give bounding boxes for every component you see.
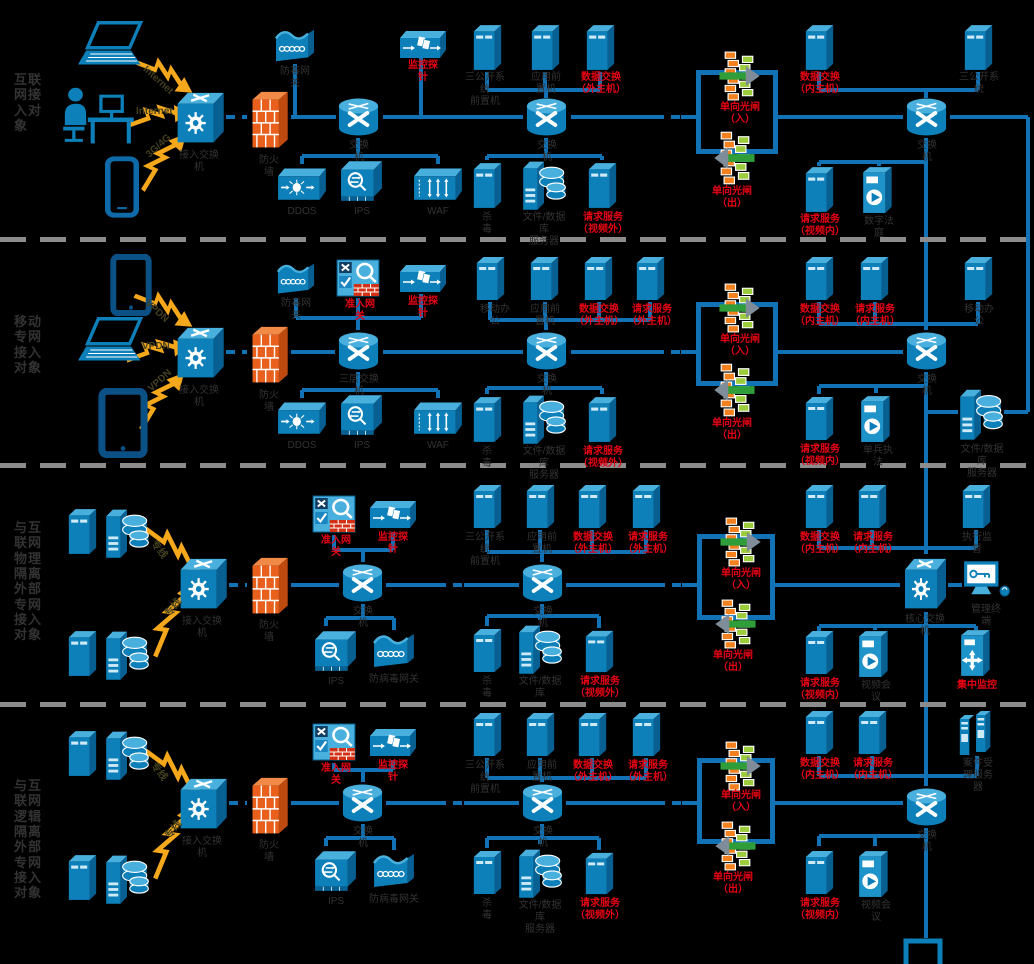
server-antivirus-4-icon [471,848,504,896]
server-request-video-int-2-icon [803,394,836,442]
switch-router-2-icon [523,96,570,138]
video-conference-2-icon [856,848,894,898]
switch-router-1-icon [335,96,382,138]
tablet-2 [98,388,148,458]
firewall-4 [247,774,291,836]
filedb-server-4-icon [517,620,563,676]
switch-router-4-icon [523,330,570,372]
server-antivirus-1-icon [471,160,504,210]
server-request-int-4 [856,708,889,756]
firewall-1 [247,88,291,150]
ext-server-b1-icon [66,728,99,778]
server-request-video-int-3-icon [803,628,836,676]
switch-router-9 [519,782,566,824]
server-request-int-2 [858,254,891,302]
probe-1-icon [398,28,448,60]
server-request-video-ext-2-icon [586,394,619,444]
server-request-video-ext-3-icon [583,628,616,674]
server-data-exchange-int-4 [803,708,836,756]
server-antivirus-4 [471,848,504,896]
switch-router-4 [523,330,570,372]
server-data-exchange-ext-2 [582,254,615,302]
server-data-exchange-int-4-icon [803,708,836,756]
server-data-exchange-int-2 [803,254,836,302]
probe-2 [398,262,448,294]
access-switch-1-icon [172,88,226,146]
probe-4 [368,726,418,758]
server-exec-supervision [960,482,993,530]
switch-router-8-icon [339,782,386,824]
server-app-frontend-4 [524,710,557,758]
server-data-exchange-ext-1 [584,22,617,72]
nac-gateway-2-icon [335,258,381,298]
switch-router-5-icon [903,330,950,372]
server-request-ext-3 [630,482,663,530]
ext-filedb-b2-icon [104,850,150,906]
one-way-gate-in-1 [716,50,762,102]
switch-router-10-icon [903,786,950,828]
one-way-gate-out-3 [713,598,759,650]
antivirus-gateway-2 [276,260,316,298]
firewall-3-icon [247,554,291,616]
filedb-server-3-icon [958,384,1004,442]
antivirus-gateway-4-icon [372,850,416,892]
ddos-2-icon [276,398,328,436]
server-data-exchange-ext-4 [576,710,609,758]
link-caption: VPDN [142,341,170,352]
ips-4-icon [312,846,359,894]
central-monitoring [958,628,996,678]
server-sangongkai-1-icon [962,22,995,72]
user-desk-1 [55,84,137,148]
server-request-int-4-icon [856,708,889,756]
access-switch-2-icon [172,323,226,381]
switch-router-1 [335,96,382,138]
one-way-gate-in-4 [717,740,763,792]
server-request-int-3-icon [856,482,889,530]
nac-gateway-3-icon [311,494,357,534]
waf-2-icon [412,398,464,436]
switch-router-5 [903,330,950,372]
access-switch-2 [172,323,226,381]
case-acceptance-server [956,708,998,756]
server-antivirus-2-icon [471,394,504,444]
ddos-1 [276,164,328,202]
waf-1 [412,164,464,202]
server-data-exchange-int-1-icon [803,22,836,72]
ext-filedb-b2 [104,850,150,906]
server-request-ext-4 [630,710,663,758]
probe-3-icon [368,498,418,530]
switch-router-2 [523,96,570,138]
server-antivirus-3 [471,626,504,674]
server-data-exchange-ext-3 [576,482,609,530]
one-way-gate-in-4-icon [717,740,763,792]
link-caption: Internet [136,106,173,117]
server-sangongkai-frontend-1 [471,22,504,72]
server-request-video-ext-4 [583,850,616,896]
server-request-ext-2 [634,254,667,302]
zone-title: 与互 联网 逻辑 隔离 外部 专网 接入 对象 [14,778,42,901]
firewall-3 [247,554,291,616]
server-data-exchange-ext-3-icon [576,482,609,530]
central-monitoring-icon [958,628,996,678]
filedb-server-2 [521,390,567,446]
ext-filedb-a1-icon [104,504,150,560]
server-mobile-office-2-icon [962,254,995,302]
filedb-server-5-icon [517,844,563,900]
server-request-int-2-icon [858,254,891,302]
zone-title: 与互 联网 物理 隔离 外部 专网 接入 对象 [14,520,42,643]
antivirus-gateway-1-icon [274,26,316,66]
waf-2 [412,398,464,436]
zone-title: 移动 专网 接入 对象 [14,314,42,375]
firewall-2 [247,323,291,385]
ext-filedb-a2 [104,626,150,682]
server-request-video-int-3 [803,628,836,676]
probe-4-icon [368,726,418,758]
server-request-video-int-1 [803,164,836,214]
one-way-gate-out-2 [712,362,758,418]
ips-2-icon [338,390,385,438]
filedb-server-2-icon [521,390,567,446]
antivirus-gateway-3 [372,630,416,672]
one-way-gate-out-4 [713,820,759,872]
ips-4 [312,846,359,894]
server-request-ext-2-icon [634,254,667,302]
ext-server-a2 [66,628,99,678]
ips-1-icon [338,156,385,204]
management-terminal [962,558,1012,602]
antivirus-gateway-4 [372,850,416,892]
server-app-frontend-3-icon [524,482,557,530]
switch-router-7-icon [519,562,566,604]
core-switch [900,554,948,612]
server-request-video-int-2 [803,394,836,442]
server-app-frontend-1-icon [529,22,562,72]
server-data-exchange-int-3 [803,482,836,530]
switch-router-6 [339,562,386,604]
server-mobile-office-1 [474,254,507,302]
ext-server-b1 [66,728,99,778]
ext-filedb-b1 [104,726,150,782]
filedb-server-4 [517,620,563,676]
video-conference-1 [856,628,894,678]
laptop-1-icon [78,20,146,70]
probe-2-icon [398,262,448,294]
server-app-frontend-3 [524,482,557,530]
nac-gateway-3 [311,494,357,534]
digital-court-terminal-icon [860,164,898,214]
ext-filedb-a2-icon [104,626,150,682]
video-conference-2 [856,848,894,898]
switch-router-6-icon [339,562,386,604]
one-way-gate-out-4-icon [713,820,759,872]
probe-3 [368,498,418,530]
one-way-gate-in-1-icon [716,50,762,102]
ext-server-b2 [66,852,99,902]
smartphone-1-icon [103,156,141,218]
ddos-1-icon [276,164,328,202]
one-way-gate-in-2 [716,282,762,334]
server-antivirus-1 [471,160,504,210]
server-request-video-ext-2 [586,394,619,444]
server-antivirus-3-icon [471,626,504,674]
laptop-2 [78,316,146,366]
server-sangongkai-frontend-1-icon [471,22,504,72]
ddos-2 [276,398,328,436]
server-mobile-office-2 [962,254,995,302]
network-architecture-diagram: 接入交换 机防火 墙防毒网 关监控探 针交换 机DDOSIPSWAF三公开系 统… [0,0,1034,964]
switch-router-10 [903,786,950,828]
video-conference-1-icon [856,628,894,678]
zone-separator-1 [0,237,1034,242]
server-request-video-int-4 [803,848,836,896]
ips-2 [338,390,385,438]
server-request-video-ext-1 [586,160,619,210]
access-switch-1 [172,88,226,146]
ext-server-b2-icon [66,852,99,902]
ext-server-a2-icon [66,628,99,678]
smartphone-1 [103,156,141,218]
ips-3-icon [312,626,359,674]
antivirus-gateway-2-icon [276,260,316,298]
one-way-gate-in-3-icon [717,516,763,568]
server-request-video-int-4-icon [803,848,836,896]
server-request-int-3 [856,482,889,530]
antivirus-gateway-3-icon [372,630,416,672]
switch-router-3 [903,96,950,138]
laptop-1 [78,20,146,70]
server-request-video-ext-1-icon [586,160,619,210]
zone-separator-3 [0,702,1034,707]
server-request-video-ext-4-icon [583,850,616,896]
l3-switch-router-icon [335,330,382,372]
server-data-exchange-int-3-icon [803,482,836,530]
server-app-frontend-2-icon [528,254,561,302]
server-antivirus-2 [471,394,504,444]
tablet-2-icon [98,388,148,458]
firewall-2-icon [247,323,291,385]
server-sangongkai-1 [962,22,995,72]
server-app-frontend-2 [528,254,561,302]
partial-device-icon [903,938,943,964]
server-request-ext-3-icon [630,482,663,530]
waf-1-icon [412,164,464,202]
ext-filedb-b1-icon [104,726,150,782]
ips-1 [338,156,385,204]
zone-separator-2 [0,463,1034,468]
user-desk-1-icon [55,84,137,148]
antivirus-gateway-1 [274,26,316,66]
filedb-server-3 [958,384,1004,442]
server-sangongkai-frontend-4-icon [471,710,504,758]
one-way-gate-out-1-icon [712,130,758,186]
one-way-gate-out-2-icon [712,362,758,418]
filedb-server-1-icon [521,156,567,212]
server-sangongkai-frontend-3 [471,482,504,530]
server-request-ext-4-icon [630,710,663,758]
body-camera-terminal [858,393,896,443]
one-way-gate-in-2-icon [716,282,762,334]
firewall-1-icon [247,88,291,150]
nac-gateway-4 [311,722,357,762]
server-data-exchange-int-1 [803,22,836,72]
switch-router-7 [519,562,566,604]
switch-router-8 [339,782,386,824]
management-terminal-icon [962,558,1012,602]
server-request-video-ext-3 [583,628,616,674]
server-sangongkai-frontend-4 [471,710,504,758]
switch-router-3-icon [903,96,950,138]
l3-switch-router [335,330,382,372]
one-way-gate-out-3-icon [713,598,759,650]
core-switch-icon [900,554,948,612]
case-acceptance-server-icon [956,708,998,756]
firewall-4-icon [247,774,291,836]
ext-server-a1 [66,506,99,556]
nac-gateway-2 [335,258,381,298]
ext-filedb-a1 [104,504,150,560]
server-data-exchange-int-2-icon [803,254,836,302]
ext-server-a1-icon [66,506,99,556]
filedb-server-1 [521,156,567,212]
server-data-exchange-ext-4-icon [576,710,609,758]
zone-title: 互联 网接 入对 象 [14,72,42,133]
nac-gateway-4-icon [311,722,357,762]
access-switch-4 [175,774,229,832]
access-switch-4-icon [175,774,229,832]
ips-3 [312,626,359,674]
server-request-video-int-1-icon [803,164,836,214]
switch-router-9-icon [519,782,566,824]
probe-1 [398,28,448,60]
laptop-2-icon [78,316,146,366]
server-data-exchange-ext-2-icon [582,254,615,302]
server-app-frontend-4-icon [524,710,557,758]
digital-court-terminal [860,164,898,214]
server-data-exchange-ext-1-icon [584,22,617,72]
body-camera-terminal-icon [858,393,896,443]
filedb-server-5 [517,844,563,900]
server-app-frontend-1 [529,22,562,72]
one-way-gate-in-3 [717,516,763,568]
server-mobile-office-1-icon [474,254,507,302]
server-exec-supervision-icon [960,482,993,530]
one-way-gate-out-1 [712,130,758,186]
server-sangongkai-frontend-3-icon [471,482,504,530]
partial-device [903,938,943,964]
